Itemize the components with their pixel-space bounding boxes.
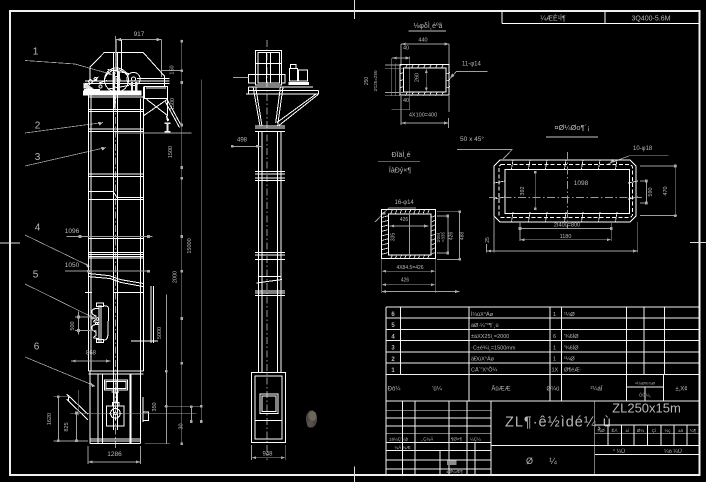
svg-text:3Q400-5.6M: 3Q400-5.6M [632, 16, 671, 23]
svg-text:1: 1 [553, 357, 556, 363]
svg-text:350: 350 [152, 402, 158, 411]
svg-text:CÄ´"X°Õ¼: CÄ´"X°Õ¼ [471, 367, 498, 374]
svg-text:äØ·¼"°¶´¸ù: äØ·¼"°¶´¸ù [471, 323, 499, 329]
svg-text:868: 868 [86, 351, 97, 357]
svg-text:6: 6 [553, 334, 556, 340]
svg-text:'ü¼: 'ü¼ [432, 387, 442, 393]
svg-text:ZL250x15m: ZL250x15m [612, 401, 681, 416]
svg-text:426: 426 [401, 278, 410, 284]
svg-text:440: 440 [418, 38, 427, 44]
svg-text:3: 3 [35, 152, 41, 163]
svg-text:¹¼Ø: ¹¼Ø [564, 312, 575, 318]
svg-text:40: 40 [403, 46, 409, 52]
svg-text:ÏàÐý×¶: ÏàÐý×¶ [389, 167, 411, 175]
svg-text:2000: 2000 [173, 271, 179, 283]
svg-text:260: 260 [415, 73, 421, 82]
svg-text:±Ø¼Æ¶: ±Ø¼Æ¶ [446, 469, 463, 474]
svg-text:¼ç: ¼ç [664, 428, 671, 433]
svg-text:6: 6 [34, 342, 40, 353]
svg-text:¼ÆÈ¹Ï¶: ¼ÆÈ¹Ï¶ [540, 14, 566, 23]
svg-text:1180: 1180 [560, 234, 572, 240]
svg-text:ÐÏäÌ¸é: ÐÏäÌ¸é [391, 150, 410, 159]
svg-text:590: 590 [648, 187, 654, 196]
svg-text:426: 426 [400, 217, 409, 223]
svg-text:¸,Ç¼Ä: ¸,Ç¼Ä [421, 436, 434, 443]
svg-text:Ðô¼: Ðô¼ [388, 387, 402, 393]
svg-text:Ì¼ùX°Áø: Ì¼ùX°Áø [471, 311, 494, 318]
svg-text:2: 2 [35, 121, 41, 132]
svg-text:470: 470 [663, 186, 669, 195]
svg-text:¼: ¼ [549, 456, 557, 466]
svg-text:2⁄125=250: 2⁄125=250 [373, 70, 378, 91]
svg-text:1500: 1500 [170, 98, 176, 110]
svg-text:426: 426 [449, 232, 455, 241]
svg-text:16-φ14: 16-φ14 [395, 200, 415, 206]
svg-text:±,X¢: ±,X¢ [675, 387, 687, 393]
svg-text:40: 40 [403, 98, 409, 104]
svg-text:1: 1 [553, 345, 556, 351]
svg-text:10-φ18: 10-φ18 [633, 146, 653, 152]
svg-text:1096: 1096 [65, 228, 80, 235]
svg-text:4X100=400: 4X100=400 [409, 113, 437, 119]
svg-text:15000: 15000 [187, 238, 193, 253]
svg-text:1500: 1500 [168, 146, 174, 158]
svg-text:2Ì400=800: 2Ì400=800 [554, 222, 580, 229]
svg-text:⅛φδÌ¸éºã: ⅛φδÌ¸éºã [414, 21, 443, 30]
svg-text:Ø: Ø [526, 456, 533, 466]
svg-text:11-φ14: 11-φ14 [462, 62, 481, 68]
svg-text:498: 498 [237, 138, 248, 144]
svg-text:¶Ø×¶: ¶Ø×¶ [451, 437, 463, 442]
svg-text:¹¼Ø: ¹¼Ø [564, 357, 575, 363]
svg-text:¼¶: ¼¶ [690, 428, 697, 433]
svg-text:¼ö ¼Ü: ¼ö ¼Ü [664, 448, 682, 455]
svg-text:'¾6ÌØ: '¾6ÌØ [564, 344, 579, 351]
svg-text:·C±é¾ì¸=1500mm: ·C±é¾ì¸=1500mm [471, 345, 516, 351]
svg-text:²¼áÏ: ²¼áÏ [590, 386, 602, 393]
svg-text:¤Ø¼Øο¶´¡: ¤Ø¼Øο¶´¡ [554, 123, 589, 132]
svg-text:150: 150 [170, 65, 176, 74]
svg-text:917: 917 [134, 31, 145, 38]
svg-text:Ø¼ü: Ø¼ü [546, 387, 559, 393]
svg-text:1: 1 [33, 47, 39, 58]
svg-text:30: 30 [179, 423, 185, 429]
svg-text:1286: 1286 [107, 451, 122, 458]
svg-text:5000: 5000 [157, 327, 163, 339]
svg-text:5: 5 [33, 270, 39, 281]
svg-text:ÃûÆÆ: ÃûÆÆ [491, 386, 510, 393]
svg-text:335: 335 [391, 233, 397, 242]
svg-text:ZL¶·ê½ìdé¼¸ù: ZL¶·ê½ìdé¼¸ù [505, 415, 612, 431]
svg-text:392: 392 [520, 186, 526, 195]
svg-text:° ¼Ü: ° ¼Ü [613, 448, 625, 455]
svg-text:'¾6ÌØ: '¾6ÌØ [564, 333, 579, 340]
svg-text:±äXX25ì¸=2000: ±äXX25ì¸=2000 [471, 334, 509, 340]
svg-text:Ø¼: Ø¼ [637, 428, 645, 433]
svg-text:¼Ø: ¼Ø [597, 428, 605, 433]
svg-text:825: 825 [64, 422, 70, 431]
svg-text:¼Ä ¼Æ: ¼Ä ¼Æ [395, 444, 412, 450]
svg-text:±ä¼Ç'¼þ: ±ä¼Ç'¼þ [389, 437, 409, 442]
svg-text:äÐùX°Áø: äÐùX°Áø [471, 356, 495, 363]
svg-text:948: 948 [262, 452, 273, 458]
svg-text:1050: 1050 [65, 262, 80, 269]
svg-text:«Ì¾ØXì¾Ø: «Ì¾ØXì¾Ø [635, 381, 655, 386]
svg-text:ÓÖ¼¸: ÓÖ¼¸ [639, 392, 652, 399]
svg-text:488: 488 [460, 232, 466, 241]
svg-text:1X: 1X [552, 368, 559, 374]
svg-text:ÊÁ: ÊÁ [611, 426, 617, 433]
svg-text:1620: 1620 [47, 413, 53, 425]
svg-text:250: 250 [364, 77, 370, 86]
svg-text:=335: =335 [441, 231, 446, 242]
svg-text:500: 500 [70, 321, 76, 330]
svg-text:4: 4 [35, 223, 41, 234]
svg-text:Ø¶éÆ·: Ø¶éÆ· [564, 368, 582, 374]
svg-text:¼Ç¼: ¼Ç¼ [470, 437, 481, 442]
svg-text:Çì: Çì [652, 428, 657, 433]
svg-text:±ä: ±ä [678, 428, 683, 433]
svg-text:±ì: ±ì [626, 428, 630, 433]
svg-text:4X84.5=426: 4X84.5=426 [396, 265, 423, 271]
svg-text:50 x 45°: 50 x 45° [460, 135, 484, 143]
svg-text:1: 1 [553, 312, 556, 318]
svg-text:1098: 1098 [574, 180, 589, 187]
svg-text:25: 25 [485, 237, 491, 243]
